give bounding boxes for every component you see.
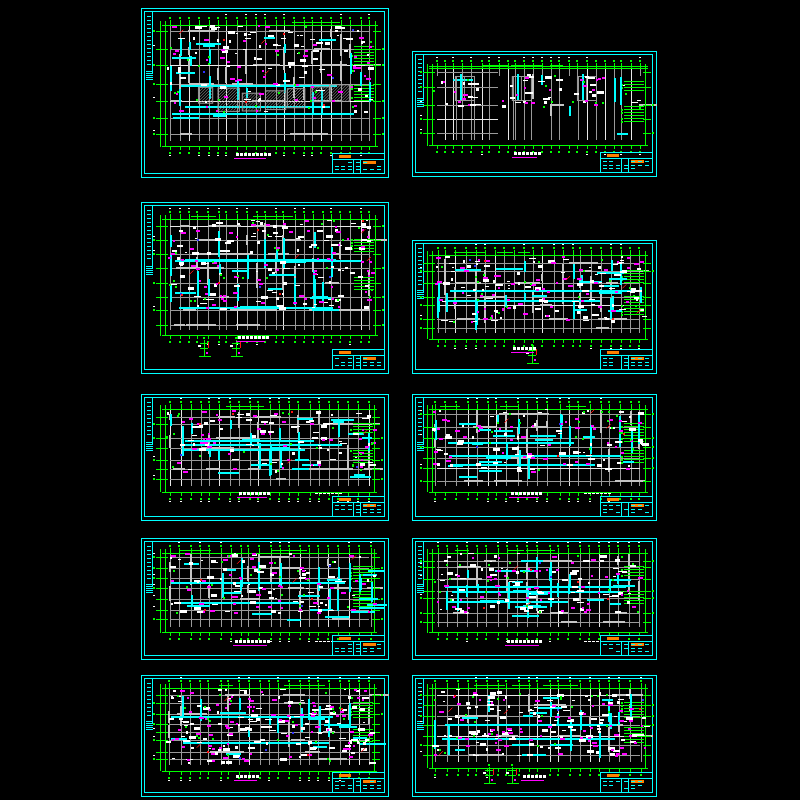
drawing-sheet-01[interactable] [141, 8, 389, 178]
drawing-sheet-10[interactable] [412, 675, 657, 797]
drawing-sheet-04[interactable] [412, 240, 657, 374]
sheet-drawing-canvas [412, 394, 657, 521]
cad-model-space [0, 0, 800, 800]
sheet-drawing-canvas [412, 675, 657, 797]
drawing-sheet-09[interactable] [141, 675, 389, 797]
sheet-drawing-canvas [412, 51, 657, 177]
drawing-sheet-08[interactable] [412, 538, 657, 660]
drawing-sheet-07[interactable] [141, 538, 389, 660]
drawing-sheet-06[interactable] [412, 394, 657, 521]
drawing-sheet-03[interactable] [141, 202, 389, 374]
sheet-drawing-canvas [141, 8, 389, 178]
sheet-drawing-canvas [412, 240, 657, 374]
sheet-drawing-canvas [412, 538, 657, 660]
sheet-drawing-canvas [141, 538, 389, 660]
drawing-sheet-02[interactable] [412, 51, 657, 177]
drawing-sheet-05[interactable] [141, 394, 389, 521]
sheet-drawing-canvas [141, 202, 389, 374]
sheet-drawing-canvas [141, 675, 389, 797]
sheet-drawing-canvas [141, 394, 389, 521]
